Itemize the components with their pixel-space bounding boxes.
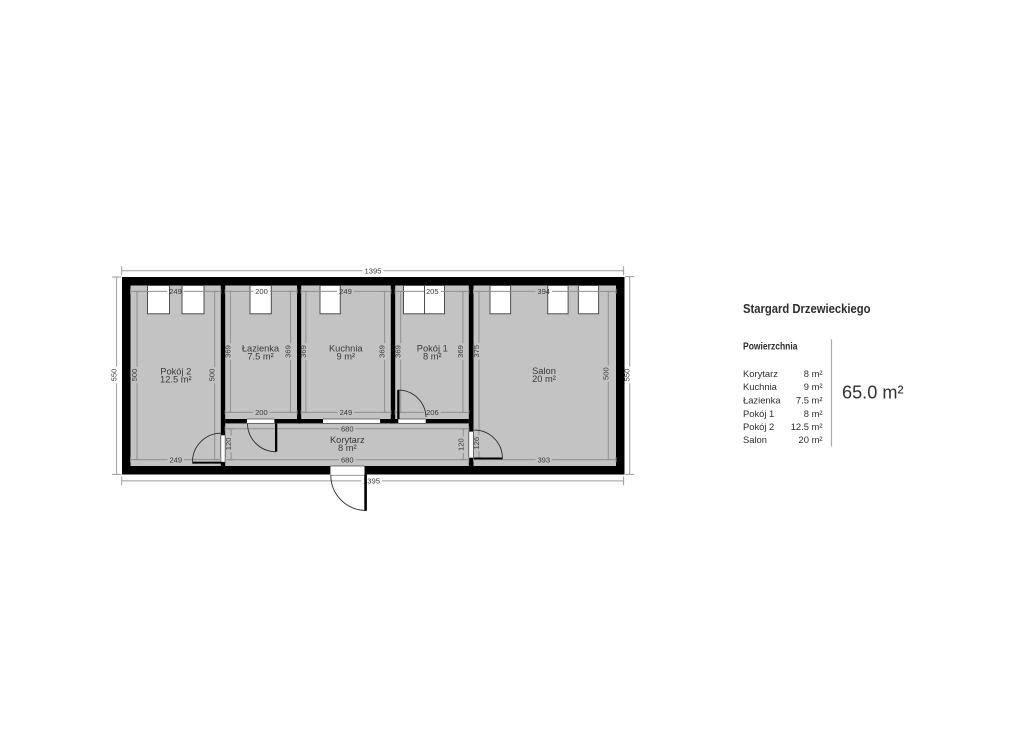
svg-text:200: 200 (255, 408, 268, 417)
svg-text:Łazienka: Łazienka (743, 395, 781, 406)
svg-text:8 m²: 8 m² (338, 443, 357, 453)
svg-text:Pokój 1: Pokój 1 (743, 408, 774, 419)
svg-text:20 m²: 20 m² (532, 374, 556, 384)
svg-text:394: 394 (537, 287, 550, 296)
svg-text:369: 369 (299, 345, 308, 358)
svg-text:7.5 m²: 7.5 m² (796, 395, 823, 406)
svg-text:369: 369 (394, 345, 403, 358)
svg-text:680: 680 (341, 455, 354, 464)
svg-text:8 m²: 8 m² (423, 352, 442, 362)
svg-text:126: 126 (472, 437, 481, 450)
svg-text:Pokój 2: Pokój 2 (743, 421, 774, 432)
svg-text:12.5 m²: 12.5 m² (791, 421, 823, 432)
svg-text:393: 393 (537, 455, 550, 464)
svg-text:1395: 1395 (365, 266, 382, 275)
svg-text:680: 680 (341, 425, 354, 434)
svg-text:249: 249 (340, 408, 353, 417)
svg-text:369: 369 (378, 345, 387, 358)
svg-text:120: 120 (456, 438, 465, 451)
svg-text:20 m²: 20 m² (799, 434, 823, 445)
svg-text:550: 550 (110, 369, 119, 382)
svg-text:8 m²: 8 m² (804, 368, 823, 379)
svg-text:249: 249 (169, 287, 182, 296)
svg-text:9 m²: 9 m² (804, 381, 823, 392)
svg-text:369: 369 (223, 345, 232, 358)
svg-text:8 m²: 8 m² (804, 408, 823, 419)
svg-text:200: 200 (255, 287, 268, 296)
svg-text:7.5 m²: 7.5 m² (247, 352, 273, 362)
svg-text:500: 500 (208, 369, 217, 382)
svg-text:Stargard Drzewieckiego: Stargard Drzewieckiego (743, 301, 871, 316)
svg-text:12.5 m²: 12.5 m² (160, 375, 192, 385)
svg-text:9 m²: 9 m² (336, 352, 355, 362)
svg-text:500: 500 (601, 367, 610, 380)
svg-text:205: 205 (426, 287, 439, 296)
svg-text:Korytarz: Korytarz (743, 368, 778, 379)
svg-text:Kuchnia: Kuchnia (743, 381, 778, 392)
svg-text:Salon: Salon (743, 434, 767, 445)
svg-text:249: 249 (339, 287, 352, 296)
svg-text:Powierzchnia: Powierzchnia (743, 342, 798, 353)
svg-text:500: 500 (130, 369, 139, 382)
svg-text:65.0 m²: 65.0 m² (842, 382, 904, 403)
svg-text:206: 206 (426, 408, 439, 417)
svg-text:369: 369 (284, 345, 293, 358)
svg-text:369: 369 (456, 345, 465, 358)
svg-text:550: 550 (623, 369, 632, 382)
svg-text:249: 249 (169, 455, 182, 464)
svg-text:120: 120 (224, 438, 233, 451)
svg-text:375: 375 (472, 345, 481, 358)
